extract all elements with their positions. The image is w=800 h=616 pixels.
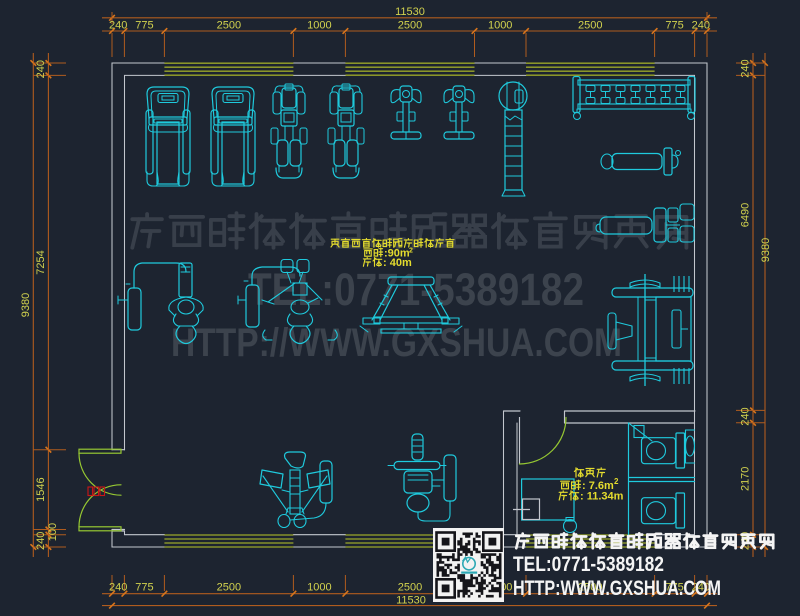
svg-text:2500: 2500 [398,582,422,594]
svg-text:1000: 1000 [307,20,331,32]
svg-text:2170: 2170 [740,467,752,491]
svg-text:11530: 11530 [396,595,426,607]
svg-text:240: 240 [692,20,710,32]
svg-text:6490: 6490 [740,203,752,227]
svg-text:7254: 7254 [35,250,47,274]
svg-text:11530: 11530 [395,6,425,18]
svg-text:2500: 2500 [217,20,241,32]
svg-text:240: 240 [740,407,752,425]
svg-text:2500: 2500 [398,20,422,32]
svg-text:1000: 1000 [488,20,512,32]
svg-text:9380: 9380 [760,238,772,262]
svg-text:HTTP:WWW.GXSHUA.COM: HTTP:WWW.GXSHUA.COM [513,577,721,600]
svg-text:100: 100 [47,523,59,541]
svg-text:1546: 1546 [35,477,47,501]
svg-text:2500: 2500 [578,20,602,32]
svg-text:240: 240 [35,60,47,78]
svg-text:: 11.34m: : 11.34m [580,491,624,503]
svg-text:240: 240 [740,59,752,77]
svg-text:775: 775 [665,20,683,32]
svg-text:1000: 1000 [307,582,331,594]
svg-text:TEL:0771-5389182: TEL:0771-5389182 [513,553,664,576]
svg-text:775: 775 [135,20,153,32]
svg-text:HTTP://WWW.GXSHUA.COM: HTTP://WWW.GXSHUA.COM [171,321,622,365]
svg-text:240: 240 [35,532,47,550]
svg-text:775: 775 [135,582,153,594]
svg-text:2500: 2500 [217,582,241,594]
svg-text:2: 2 [409,248,413,255]
svg-text:: 40m: : 40m [383,257,412,269]
svg-text:2: 2 [614,477,619,486]
svg-text:240: 240 [109,582,127,594]
svg-text:240: 240 [109,20,127,32]
svg-text:9380: 9380 [20,293,32,317]
